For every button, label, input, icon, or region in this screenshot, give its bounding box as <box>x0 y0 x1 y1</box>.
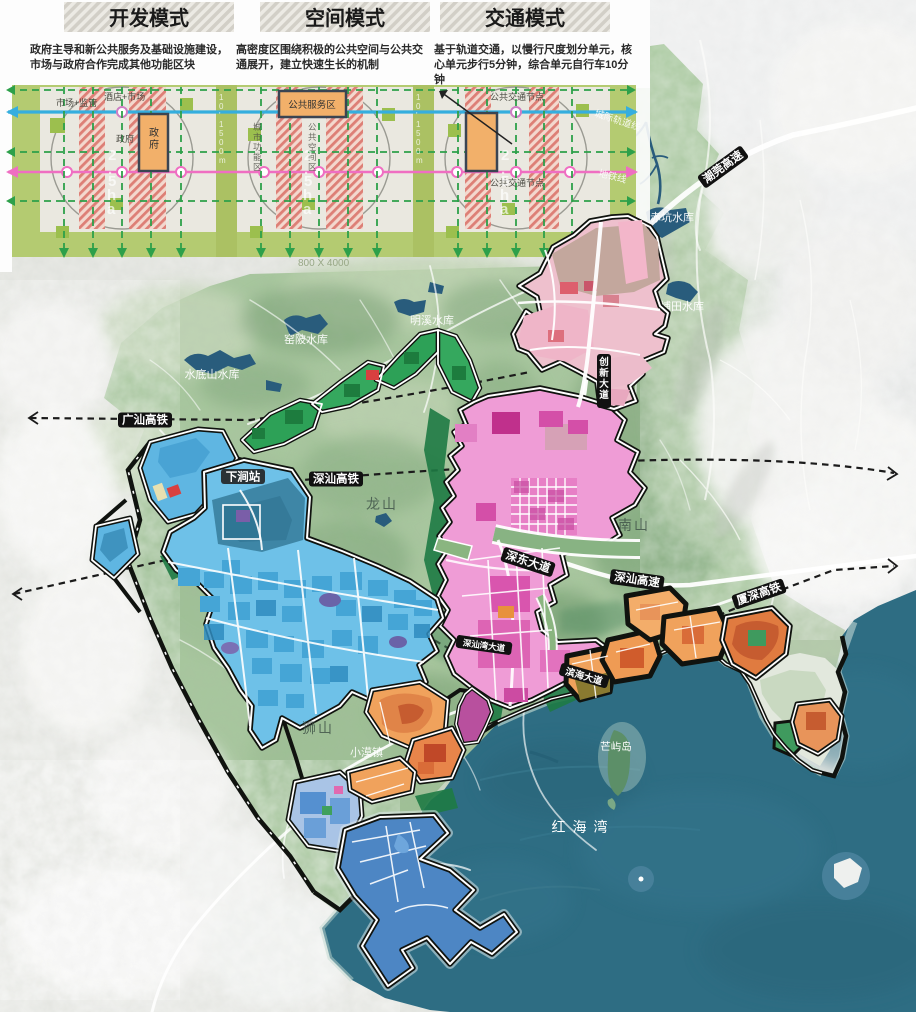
svg-text:2.5ha: 2.5ha <box>107 147 116 218</box>
svg-text:基于轨道交通，以慢行尺度划分单元，核: 基于轨道交通，以慢行尺度划分单元，核 <box>433 42 632 56</box>
svg-text:开发模式: 开发模式 <box>109 6 189 30</box>
svg-text:交通模式: 交通模式 <box>485 6 565 30</box>
svg-text:深汕高铁: 深汕高铁 <box>313 472 359 486</box>
svg-text:小漠镇: 小漠镇 <box>350 745 383 759</box>
svg-text:公共交通节点: 公共交通节点 <box>490 91 544 102</box>
svg-text:窑陂水库: 窑陂水库 <box>284 332 328 346</box>
svg-text:公共服务区: 公共服务区 <box>288 99 336 111</box>
svg-text:芒屿岛: 芒屿岛 <box>600 740 632 753</box>
svg-text:2.5ha: 2.5ha <box>303 147 312 218</box>
svg-text:钟: 钟 <box>434 72 445 86</box>
svg-text:明溪水库: 明溪水库 <box>410 314 454 327</box>
svg-text:狮山: 狮山 <box>302 720 334 736</box>
svg-text:800 X 4000: 800 X 4000 <box>298 258 350 269</box>
svg-text:创新大道: 创新大道 <box>598 356 609 401</box>
svg-text:市场与政府合作完成其他功能区块: 市场与政府合作完成其他功能区块 <box>30 57 196 71</box>
svg-text:龙山: 龙山 <box>366 496 398 512</box>
svg-text:南山: 南山 <box>618 517 650 533</box>
svg-text:水底山水库: 水底山水库 <box>185 367 240 381</box>
svg-text:酒店+市场: 酒店+市场 <box>104 91 145 102</box>
svg-text:政府: 政府 <box>149 126 159 151</box>
svg-text:2.5ha: 2.5ha <box>500 147 509 218</box>
svg-text:政府: 政府 <box>116 133 134 144</box>
svg-text:高密度区围绕积极的公共空间与公共交: 高密度区围绕积极的公共空间与公共交 <box>236 42 423 56</box>
svg-text:空间模式: 空间模式 <box>305 6 385 30</box>
svg-text:通展开，建立快速生长的机制: 通展开，建立快速生长的机制 <box>236 57 379 71</box>
svg-text:广汕高铁: 广汕高铁 <box>122 413 168 427</box>
svg-text:政府主导和新公共服务及基础设施建设，: 政府主导和新公共服务及基础设施建设， <box>30 42 228 56</box>
svg-text:公共交通节点: 公共交通节点 <box>490 177 544 188</box>
svg-text:市场+监管: 市场+监管 <box>56 97 97 108</box>
svg-text:下涧站: 下涧站 <box>226 470 261 484</box>
svg-text:城市功能区: 城市功能区 <box>253 122 262 172</box>
svg-text:心单元步行5分钟，综合单元自行车10分: 心单元步行5分钟，综合单元自行车10分 <box>434 57 628 71</box>
svg-text:红海湾: 红海湾 <box>552 819 615 835</box>
svg-text:赤坑水库: 赤坑水库 <box>650 210 694 224</box>
